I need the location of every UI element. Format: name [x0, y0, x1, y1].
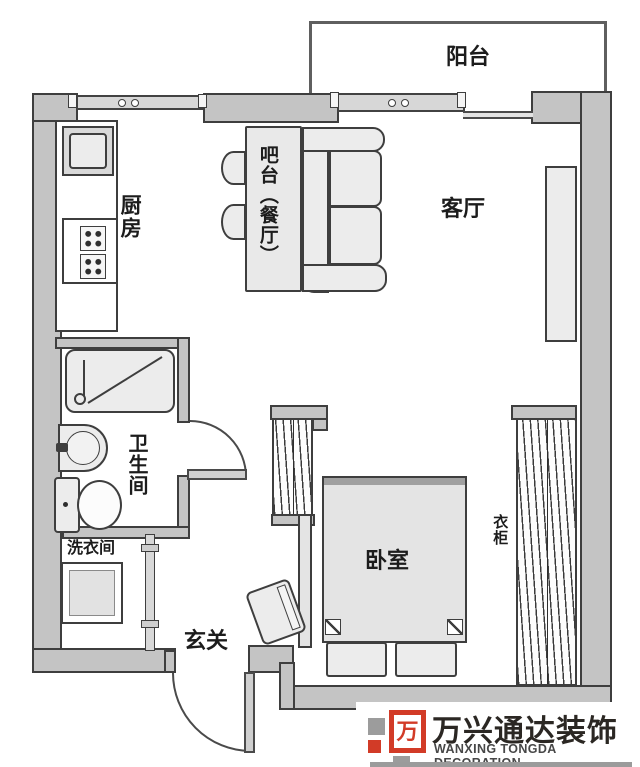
bathroom-wall-right-lower: [177, 475, 190, 532]
stove-burner-icon: [80, 254, 106, 279]
tv-cabinet: [545, 166, 577, 342]
bar-stool: [221, 204, 246, 240]
entry-door-jamb-left: [164, 650, 176, 673]
wall-bottom-left: [32, 648, 176, 673]
toilet-bowl: [77, 480, 122, 530]
wardrobe-left: [272, 418, 313, 516]
sofa-arm-bottom: [302, 264, 387, 292]
watermark-logo: 万 万兴通达装饰 WANXING TONGDA DECORATION: [356, 702, 640, 767]
bathroom-wall-right-upper: [177, 337, 190, 423]
label-bedroom: 卧室: [365, 548, 409, 573]
entry-door-leaf: [245, 673, 254, 752]
balcony-door-threshold: [463, 111, 533, 119]
window-jamb: [457, 92, 466, 108]
stove-burner-icon: [80, 226, 106, 251]
bed-pillow: [395, 642, 457, 677]
window-jamb: [68, 94, 77, 108]
window-kitchen: [76, 95, 203, 110]
washbasin-faucet: [56, 443, 68, 452]
window-jamb: [330, 92, 339, 108]
label-bar-dining: 吧台（餐厅）: [256, 145, 278, 265]
label-entrance: 玄关: [184, 628, 228, 653]
logo-mark-icon: 万: [368, 710, 426, 764]
shower-tray: [65, 349, 175, 413]
logo-square-main: 万: [389, 710, 426, 753]
wall-step: [279, 662, 295, 710]
wardrobe-right: [516, 418, 577, 686]
bathroom-door-arc: [190, 421, 246, 477]
wall-right: [580, 91, 612, 710]
window-hinge-icon: [118, 99, 126, 107]
label-wardrobe: 衣柜: [491, 514, 508, 546]
bathroom-door-leaf: [188, 470, 246, 479]
washing-machine-drum: [69, 570, 115, 616]
label-bathroom: 卫生间: [124, 433, 147, 496]
sofa-arm-top: [302, 127, 385, 152]
window-hinge-icon: [401, 99, 409, 107]
bar-stool: [221, 151, 246, 185]
bed-pillow: [326, 642, 387, 677]
wardrobe-cap-left-tab: [312, 418, 328, 431]
entry-door-arc: [173, 673, 250, 751]
bed-headboard: [324, 478, 465, 485]
washbasin-bowl: [66, 431, 100, 465]
window-hinge-icon: [388, 99, 396, 107]
label-kitchen: 厨房: [117, 194, 141, 240]
toilet-button: [63, 502, 68, 507]
logo-underline: [370, 762, 632, 767]
label-balcony: 阳台: [446, 44, 490, 69]
wall-tab: [141, 544, 159, 552]
sofa-seat: [329, 206, 382, 265]
logo-square-gray: [368, 718, 385, 735]
logo-square-red: [368, 740, 381, 753]
kitchen-sink-basin: [69, 133, 107, 169]
bathroom-wall-top: [55, 337, 186, 349]
label-laundry: 洗衣间: [67, 540, 115, 558]
logo-glyph: 万: [396, 721, 418, 743]
label-living-room: 客厅: [441, 196, 485, 221]
window-jamb: [198, 94, 207, 108]
wall-tab: [141, 620, 159, 628]
floor-plan: 阳台 厨房 吧台（餐厅） 客厅 卫生间 洗衣间 玄关 卧室 衣柜 万 万兴通达装…: [0, 0, 640, 767]
wall-top-middle: [203, 93, 339, 123]
bathroom-wall-bottom: [62, 526, 190, 539]
bed-corner-notch: [447, 619, 463, 635]
bed-corner-notch: [325, 619, 341, 635]
window-hinge-icon: [131, 99, 139, 107]
sofa-seat: [329, 150, 382, 207]
